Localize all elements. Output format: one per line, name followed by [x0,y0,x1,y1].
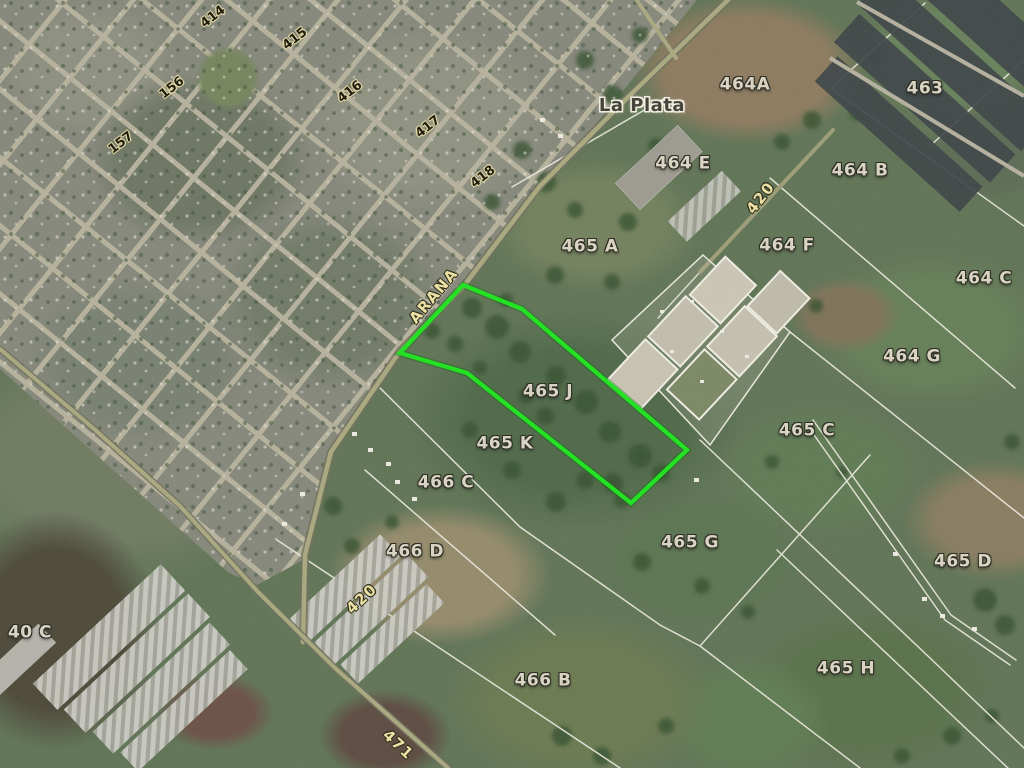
satellite-map-canvas[interactable]: 414 415 416 417 418 156 157 La Plata ARA… [0,0,1024,768]
parcel-label-465d: 465 D [934,554,992,571]
parcel-label-464g: 464 G [883,349,941,366]
parcel-label-465h: 465 H [817,661,875,678]
parcel-label-466c: 466 C [418,475,474,492]
grain-texture [0,0,1024,768]
parcel-label-464a: 464A [720,77,771,94]
parcel-label-465k: 465 K [476,436,533,453]
parcel-label-465g: 465 G [661,535,719,552]
parcel-label-465j-highlighted: 465 J [523,384,573,401]
parcel-label-465a: 465 A [561,239,618,256]
town-label-la-plata: La Plata [599,97,685,115]
parcel-label-464f: 464 F [759,238,815,255]
parcel-label-464c: 464 C [956,271,1012,288]
parcel-label-466b: 466 B [515,673,572,690]
parcel-label-463: 463 [907,81,944,98]
parcel-label-464b: 464 B [832,163,889,180]
parcel-label-465c: 465 C [779,423,835,440]
map-overlay-graphics [0,0,1024,768]
parcel-label-466d: 466 D [386,544,444,561]
parcel-label-464e: 464 E [655,156,711,173]
parcel-label-40c: 40 C [8,625,52,642]
